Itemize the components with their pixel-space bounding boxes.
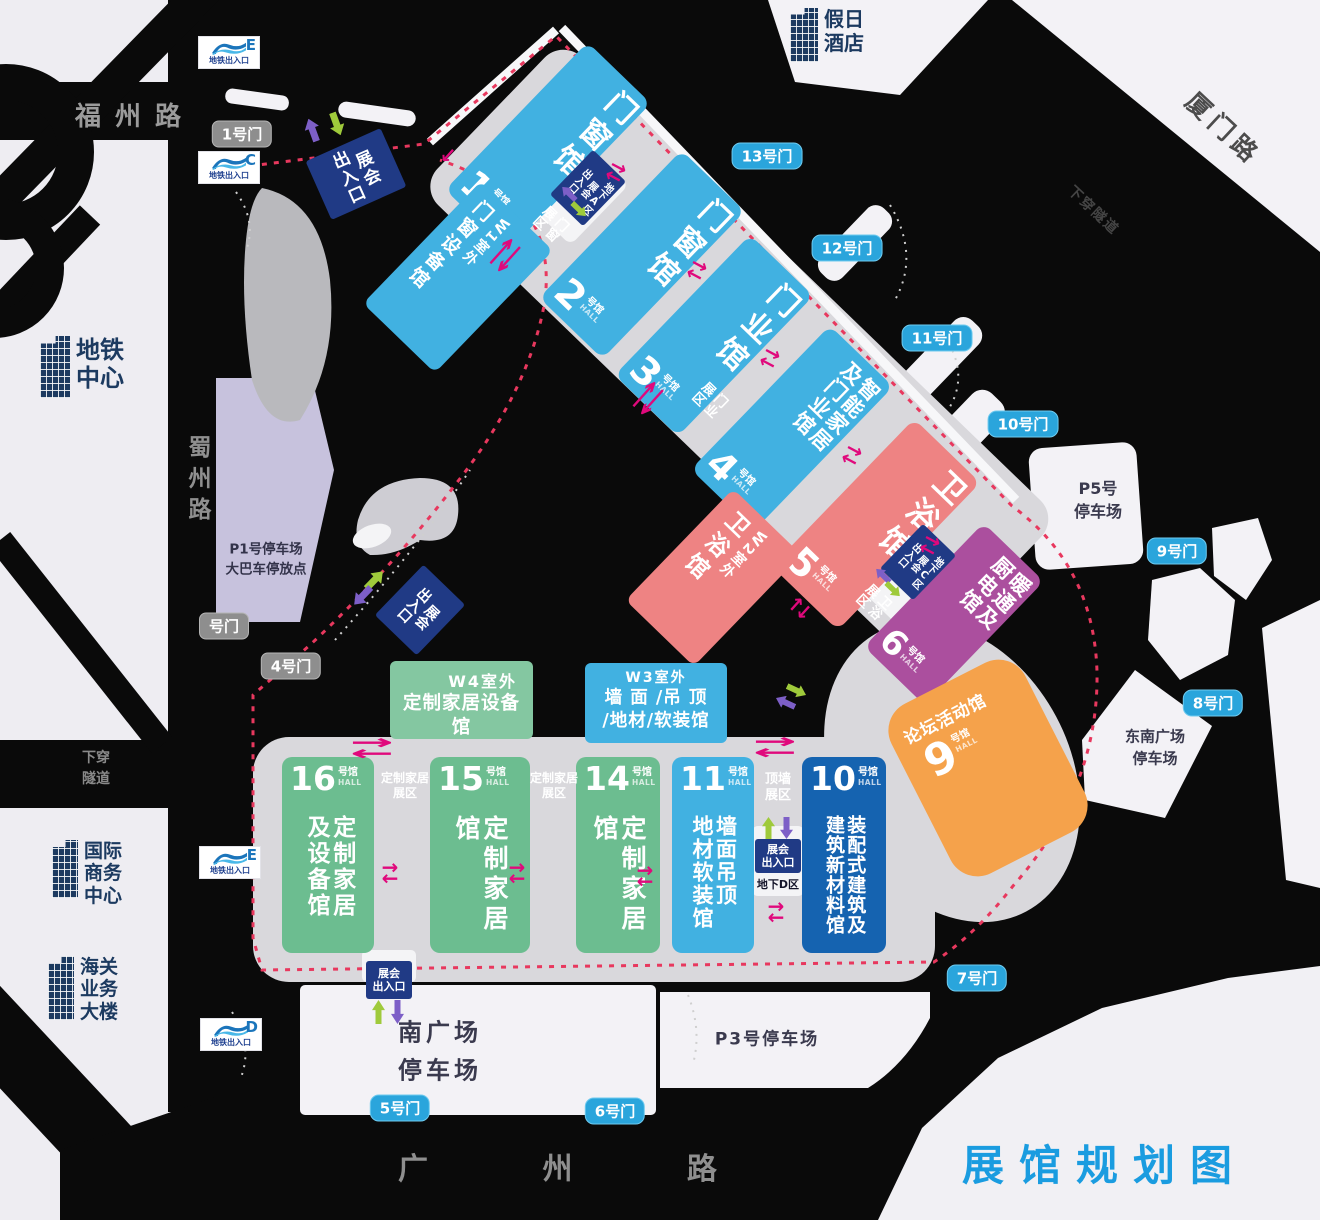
road-shuzhou-label: 蜀州路 [180, 435, 214, 528]
building-icon [40, 336, 70, 398]
hall-10-number: 10号馆HALL [810, 765, 882, 793]
building-icon [52, 840, 78, 898]
gate-10: 10号门 [988, 411, 1059, 438]
gate-8: 8号门 [1183, 690, 1243, 717]
tunnel-west-label: 下穿 隧道 [82, 748, 110, 790]
hall-15-name: 定制家居馆 [452, 815, 508, 953]
building-customs: 海关 业务 大楼 [48, 956, 118, 1023]
parking-p1-label: P1号停车场 大巴车停放点 [226, 540, 307, 579]
parking-south-label: 南广场 停车场 [398, 1014, 482, 1091]
metro-wave-icon [211, 849, 249, 866]
zone-custom-1: 定制家居 展区 [381, 771, 429, 801]
metro-exit-e-south: E 地铁出入口 [200, 847, 260, 878]
w4-head: W4室外 [398, 668, 525, 692]
parking-southeast-label: 东南广场 停车场 [1125, 726, 1185, 770]
hall-10-name: 装配式建筑及 建筑新材料馆 [823, 815, 866, 935]
hall-15-number: 15号馆HALL [438, 765, 510, 793]
building-metro-center-label: 地铁 中心 [76, 336, 124, 393]
hall-w3-outdoor: W3室外 墙 面 /吊 顶 /地材/软装馆 [585, 663, 727, 743]
metro-wave-icon [210, 154, 248, 171]
metro-exit-c: C 地铁出入口 [199, 152, 259, 183]
hall-16-number: 16号馆HALL [290, 765, 362, 793]
map-title: 展馆规划图 [962, 1132, 1247, 1193]
building-hotel-label: 假日 酒店 [824, 8, 864, 55]
gate-13: 13号门 [732, 143, 803, 170]
building-intl-business: 国际 商务 中心 [52, 840, 122, 907]
road-fuzhou-label: 福州路 [75, 96, 195, 133]
gate-7: 7号门 [947, 965, 1007, 992]
gate-4: 4号门 [261, 653, 321, 680]
gate-unknown: 号门 [199, 613, 249, 640]
hall-16: 16号馆HALL 定制家居 及设备馆 [282, 757, 374, 953]
w3-head: W3室外 [593, 667, 719, 687]
building-customs-label: 海关 业务 大楼 [80, 956, 118, 1023]
flow-arrows-icon: →← [350, 737, 394, 759]
gate-6: 6号门 [585, 1098, 645, 1125]
gate-9: 9号门 [1147, 538, 1207, 565]
building-icon [48, 956, 74, 1020]
gate-11: 11号门 [902, 325, 973, 352]
w4-name: 定制家居设备馆 [398, 692, 525, 740]
metro-exit-e-north: E 地铁出入口 [199, 37, 259, 68]
flow-arrows-icon: →← [382, 862, 399, 884]
building-hotel: 假日 酒店 [790, 8, 864, 62]
building-icon [790, 8, 818, 62]
flow-arrows-icon: →← [637, 865, 654, 887]
hall-14: 14号馆HALL 定制家居馆 [576, 757, 660, 953]
zone-ceiling: 顶墙 展区 [765, 772, 791, 805]
metro-wave-icon [210, 39, 248, 56]
building-metro-center: 地铁 中心 [40, 336, 124, 398]
hall-11-number: 11号馆HALL [680, 765, 752, 793]
zone-custom-2: 定制家居 展区 [530, 771, 578, 801]
flow-arrows-icon: →← [509, 862, 526, 884]
metro-exit-d: D 地铁出入口 [201, 1019, 261, 1050]
gate-12: 12号门 [812, 235, 883, 262]
hall-11: 11号馆HALL 墙面吊顶 地材软装馆 [672, 757, 754, 953]
entrance-south: 展会 出入口 [366, 961, 412, 999]
flow-arrows-icon: →← [768, 901, 785, 923]
parking-p3-label: P3号停车场 [715, 1028, 819, 1053]
hall-14-number: 14号馆HALL [584, 765, 656, 793]
building-intl-business-label: 国际 商务 中心 [84, 840, 122, 907]
underground-d-label: 地下D区 [757, 876, 799, 892]
hall-w4-outdoor: W4室外 定制家居设备馆 [390, 661, 533, 739]
gate-5: 5号门 [370, 1095, 430, 1122]
exhibition-map: 门窗馆 1号馆HALL 门窗馆 2号馆HALL 门业馆 3号馆HALL 智能家居… [0, 0, 1320, 1220]
parking-p5-label: P5号 停车场 [1074, 477, 1122, 523]
hall-16-name: 定制家居 及设备馆 [302, 815, 354, 919]
metro-wave-icon [212, 1021, 250, 1038]
entrance-underground-d: 展会 出入口 [755, 839, 801, 873]
w3-name: 墙 面 /吊 顶 /地材/软装馆 [593, 687, 719, 733]
flow-arrows-icon: →← [753, 736, 797, 758]
road-guangzhou-label: 广 州 路 [398, 1144, 769, 1188]
hall-11-name: 墙面吊顶 地材软装馆 [689, 815, 736, 930]
gate-1: 1号门 [212, 121, 272, 148]
hall-10: 10号馆HALL 装配式建筑及 建筑新材料馆 [802, 757, 886, 953]
